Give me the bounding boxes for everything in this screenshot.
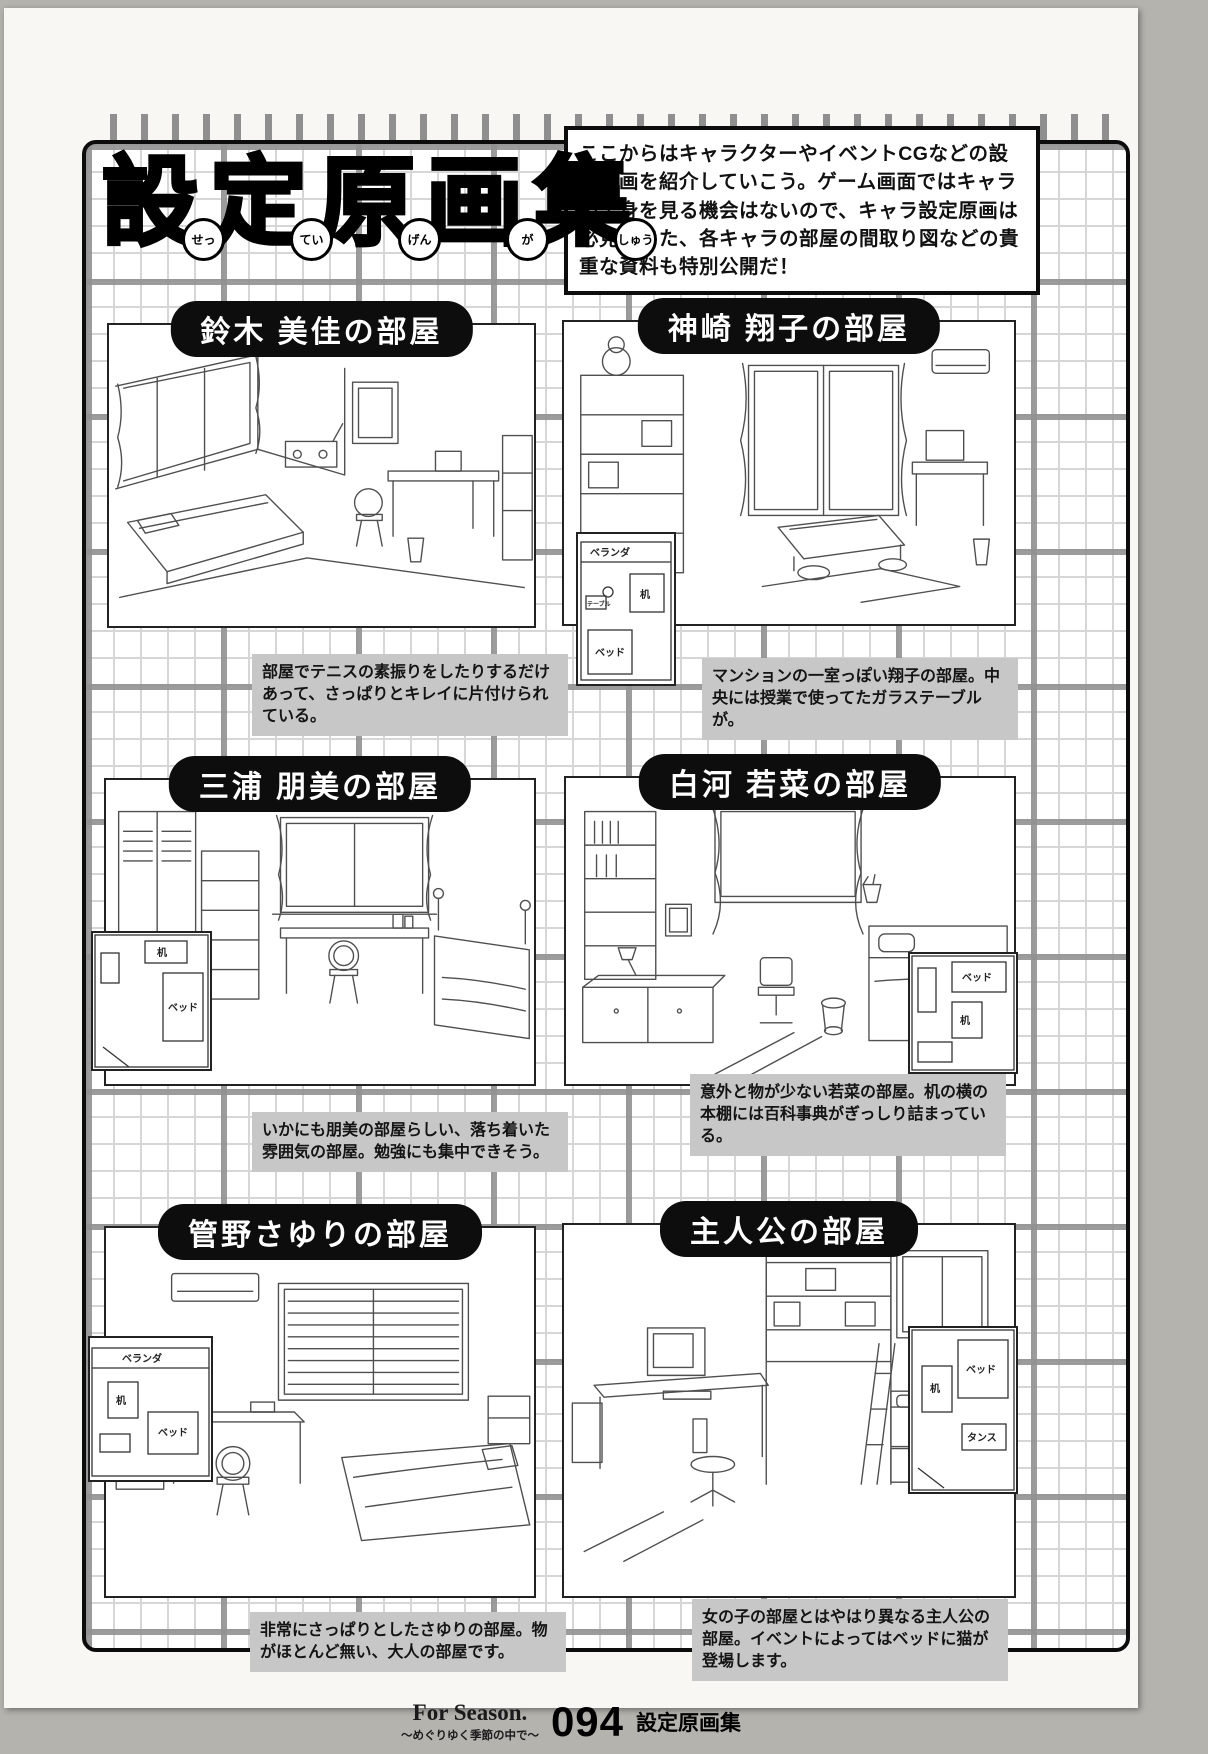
panel-sayuri-room: ベランダ 机 ベッド 管野さゆりの部屋 非常にさっぱりとしたさゆりの部屋。物がほ… [104, 1226, 536, 1598]
floor-plan-inset: 机 ベッド [91, 931, 212, 1071]
footer-brand-block: For Season. ～めぐりゆく季節の中で～ [401, 1700, 539, 1743]
footer-tagline: ～めぐりゆく季節の中で～ [401, 1727, 539, 1743]
page-footer: For Season. ～めぐりゆく季節の中で～ 094 設定原画集 [4, 1700, 1138, 1743]
panel-wakana-room: ベッド 机 白河 若菜の部屋 意外と物が少ない若菜の部屋。机の横の本棚には百科事… [564, 776, 1016, 1086]
plan-label: ベッド [158, 1427, 188, 1439]
plan-label: ベランダ [590, 546, 630, 559]
scanned-page: 設 せっ 定 てい 原 げん 画 が 集 しゅう ここからはキャラクターやイベン… [0, 0, 1208, 1754]
plan-label: ベランダ [122, 1352, 162, 1365]
panel-caption: 部屋でテニスの素振りをしたりするだけあって、さっぱりとキレイに片付けられている。 [252, 654, 568, 736]
furigana-badge: しゅう [614, 218, 657, 261]
panel-tomomi-room: 机 ベッド 三浦 朋美の部屋 いかにも朋美の部屋らしい、落ち着いた雰囲気の部屋。… [104, 778, 536, 1086]
panel-caption: いかにも朋美の部屋らしい、落ち着いた雰囲気の部屋。勉強にも集中できそう。 [252, 1112, 568, 1172]
plan-label: ベッド [595, 647, 625, 659]
plan-label: 机 [930, 1382, 940, 1395]
plan-label: 机 [960, 1014, 970, 1027]
page-number: 094 [551, 1701, 624, 1743]
plan-label: 机 [157, 946, 167, 959]
plan-label: 机 [116, 1394, 126, 1407]
room-illustration [107, 323, 536, 628]
floor-plan-inset: ベランダ 机 テーブル ベッド [576, 532, 676, 686]
paper: 設 せっ 定 てい 原 げん 画 が 集 しゅう ここからはキャラクターやイベン… [4, 8, 1138, 1708]
plan-label: ベッド [966, 1364, 996, 1376]
panel-title-banner: 白河 若菜の部屋 [639, 754, 941, 810]
furigana-badge: げん [398, 218, 441, 261]
page-title-logo: 設 せっ 定 てい 原 げん 画 が 集 しゅう [102, 154, 642, 251]
floor-plan-wakana: ベッド 机 [910, 954, 1016, 1072]
panel-caption: 意外と物が少ない若菜の部屋。机の横の本棚には百科事典がぎっしり詰まっている。 [690, 1074, 1006, 1156]
plan-label: ベッド [962, 972, 992, 984]
plan-label: ベッド [168, 1002, 198, 1014]
plan-label: タンス [967, 1432, 997, 1444]
panel-protagonist-room: ベッド 机 タンス 主人公の部屋 女の子の部屋とはやはり異なる主人公の部屋。イベ… [562, 1223, 1016, 1598]
panel-title-banner: 神崎 翔子の部屋 [638, 298, 940, 354]
panel-title-banner: 三浦 朋美の部屋 [169, 756, 471, 812]
panel-title-banner: 鈴木 美佳の部屋 [170, 301, 472, 357]
furigana-badge: が [506, 218, 549, 261]
furigana-badge: せっ [182, 218, 225, 261]
furigana-badge: てい [290, 218, 333, 261]
panel-caption: マンションの一室っぽい翔子の部屋。中央には授業で使ってたガラステーブルが。 [702, 658, 1018, 740]
floor-plan-inset: ベッド 机 [908, 952, 1018, 1074]
footer-brand: For Season. [401, 1700, 539, 1726]
panel-caption: 非常にさっぱりとしたさゆりの部屋。物がほとんど無い、大人の部屋です。 [250, 1612, 566, 1672]
floor-plan-shouko: ベランダ 机 テーブル ベッド [578, 534, 674, 684]
panel-mika-room: 鈴木 美佳の部屋 部屋でテニスの素振りをしたりするだけあって、さっぱりとキレイに… [107, 323, 536, 628]
panel-title-banner: 主人公の部屋 [660, 1201, 918, 1257]
floor-plan-protagonist: ベッド 机 タンス [910, 1328, 1016, 1492]
panel-caption: 女の子の部屋とはやはり異なる主人公の部屋。イベントによってはベッドに猫が登場しま… [692, 1599, 1008, 1681]
panel-title-banner: 管野さゆりの部屋 [158, 1204, 482, 1260]
floor-plan-sayuri: ベランダ 机 ベッド [90, 1338, 211, 1480]
plan-label: テーブル [587, 600, 611, 608]
floor-plan-inset: ベッド 机 タンス [908, 1326, 1018, 1494]
plan-label: 机 [640, 588, 650, 601]
floor-plan-tomomi: 机 ベッド [93, 933, 210, 1069]
floor-plan-inset: ベランダ 机 ベッド [88, 1336, 213, 1482]
room-sketch-mika [109, 325, 534, 626]
panel-shouko-room: ベランダ 机 テーブル ベッド 神崎 翔子の部屋 マンションの一室っぽい翔子の部… [562, 320, 1016, 626]
footer-section-title: 設定原画集 [636, 1707, 741, 1737]
